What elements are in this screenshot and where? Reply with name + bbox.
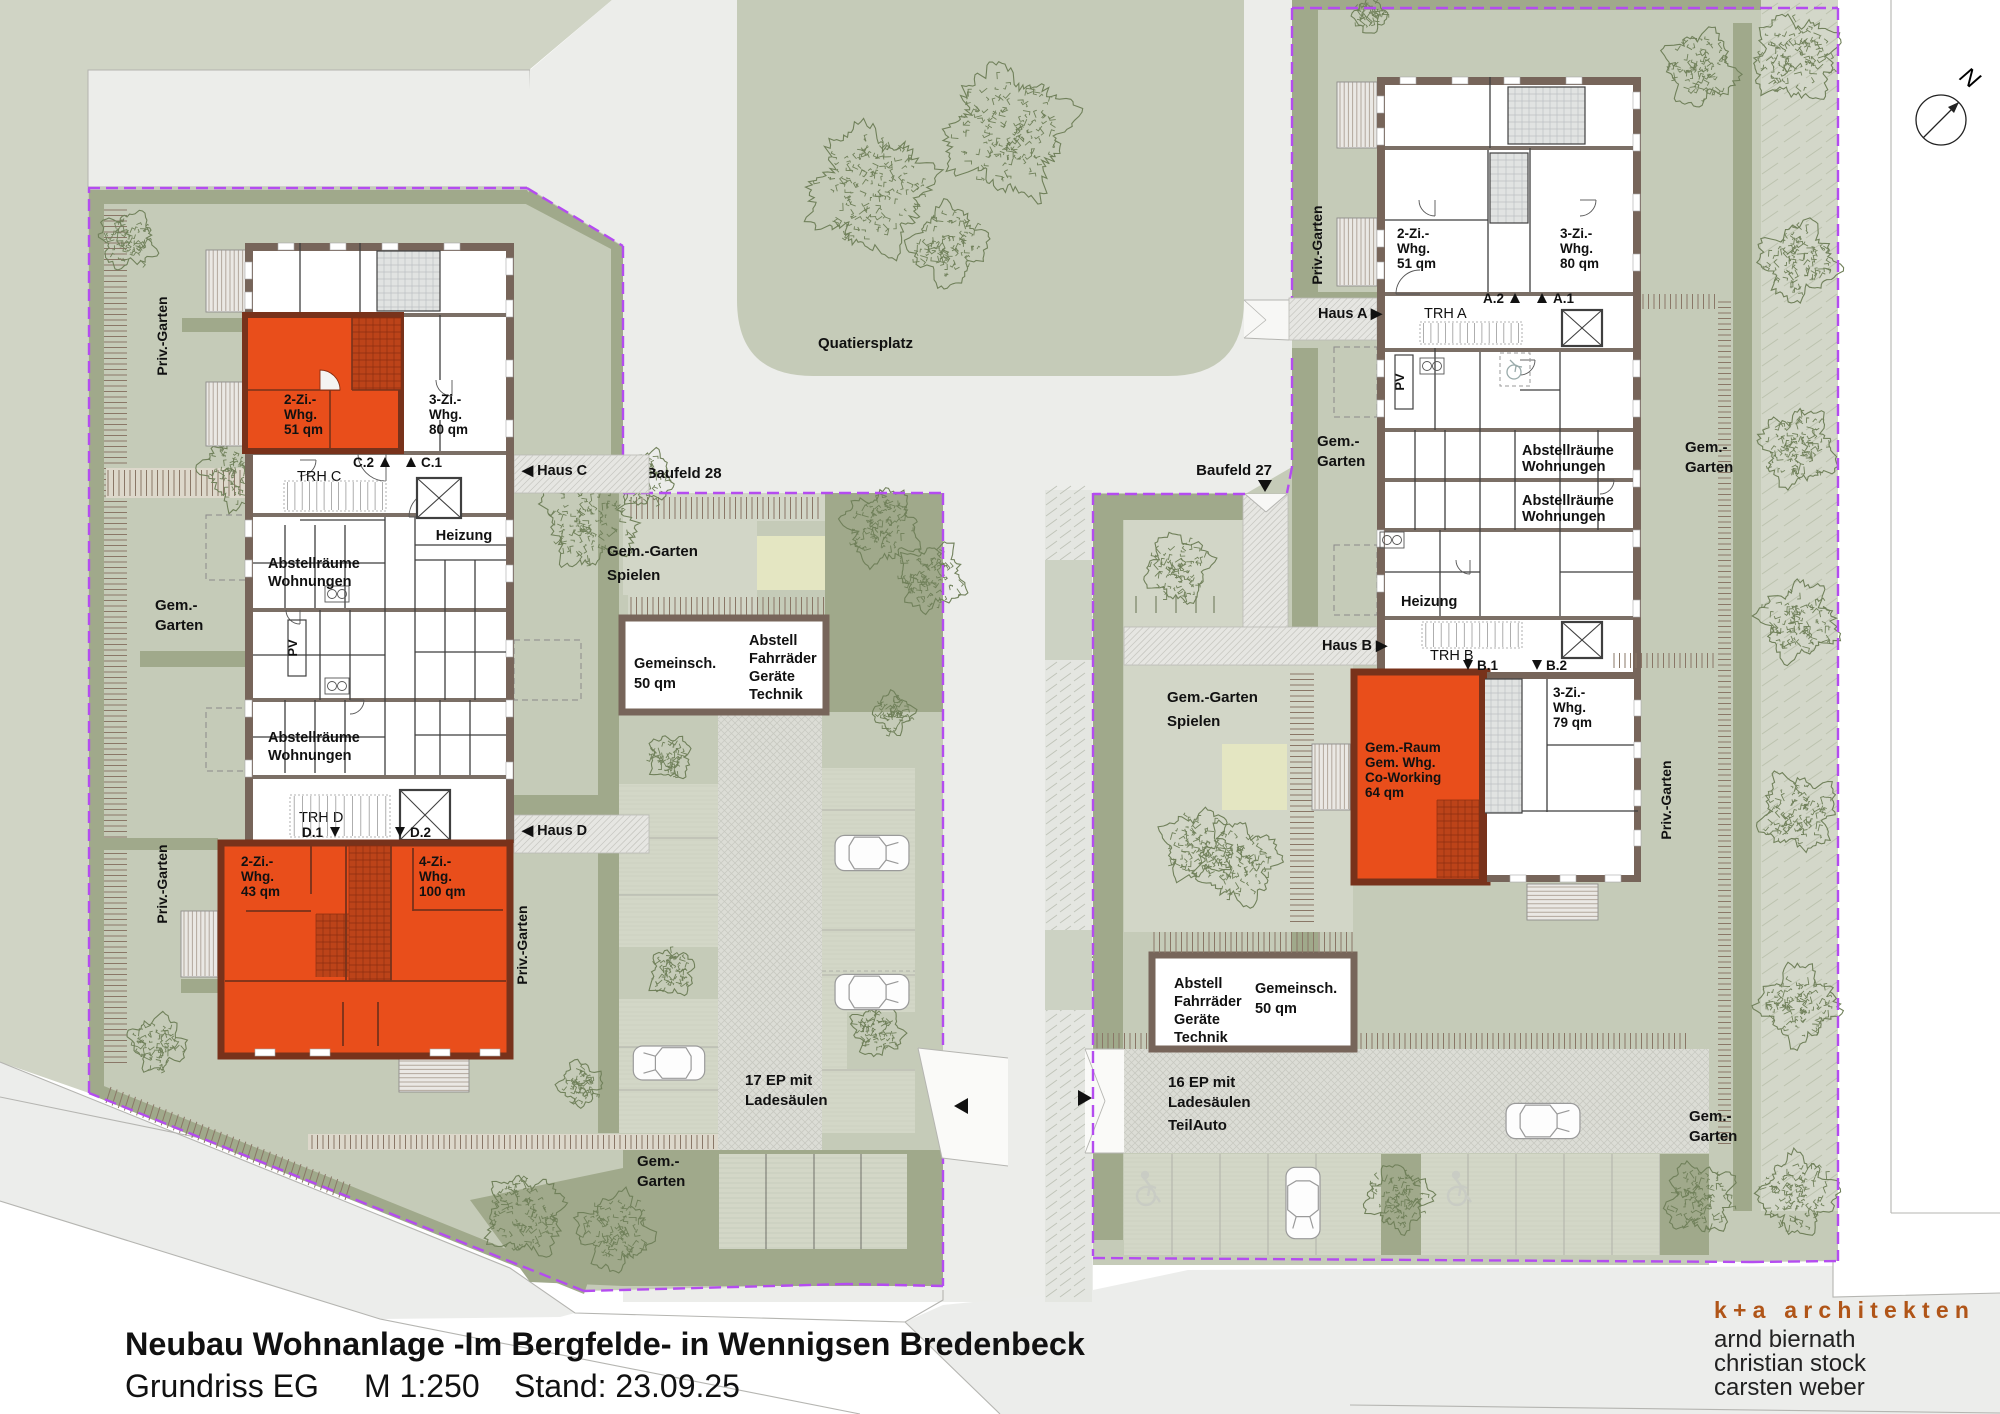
svg-text:Gem.-Raum: Gem.-Raum [1365,740,1441,755]
svg-text:TeilAuto: TeilAuto [1168,1117,1227,1134]
svg-text:Grundriss EG: Grundriss EG [125,1368,319,1404]
svg-text:4-Zi.-: 4-Zi.- [419,854,451,869]
svg-text:Whg.: Whg. [419,869,452,884]
svg-text:Fahrräder: Fahrräder [749,651,817,667]
svg-text:Priv.-Garten: Priv.-Garten [514,905,530,984]
svg-text:Technik: Technik [1174,1030,1229,1046]
svg-text:TRH A: TRH A [1424,306,1467,322]
svg-text:Ladesäulen: Ladesäulen [745,1092,828,1109]
svg-text:C.2: C.2 [353,455,374,470]
svg-text:Garten: Garten [1689,1128,1737,1145]
svg-text:Wohnungen: Wohnungen [268,574,352,590]
svg-text:Wohnungen: Wohnungen [268,748,352,764]
svg-text:Abstellräume: Abstellräume [1522,443,1614,459]
svg-text:Fahrräder: Fahrräder [1174,994,1242,1010]
svg-text:Stand: 23.09.25: Stand: 23.09.25 [514,1368,740,1404]
svg-text:PV: PV [285,639,300,657]
svg-text:3-Zi.-: 3-Zi.- [429,392,461,407]
svg-text:50 qm: 50 qm [1255,1001,1297,1017]
svg-text:Whg.: Whg. [241,869,274,884]
svg-text:Wohnungen: Wohnungen [1522,459,1606,475]
svg-text:Haus A ▶: Haus A ▶ [1318,306,1384,322]
svg-text:◀ Haus D: ◀ Haus D [521,823,587,839]
svg-text:Abstellräume: Abstellräume [268,730,360,746]
svg-text:50 qm: 50 qm [634,676,676,692]
svg-text:D.2: D.2 [410,825,431,840]
svg-text:◀ Haus C: ◀ Haus C [521,463,588,479]
svg-text:2-Zi.-: 2-Zi.- [241,854,273,869]
svg-text:Gemeinsch.: Gemeinsch. [634,656,716,672]
svg-text:Baufeld 27: Baufeld 27 [1196,462,1272,479]
svg-text:64 qm: 64 qm [1365,785,1404,800]
svg-text:43 qm: 43 qm [241,884,280,899]
svg-text:Garten: Garten [637,1173,685,1190]
svg-text:Ladesäulen: Ladesäulen [1168,1094,1251,1111]
svg-text:D.1: D.1 [302,825,324,840]
svg-text:Geräte: Geräte [1174,1012,1220,1028]
svg-text:Wohnungen: Wohnungen [1522,509,1606,525]
svg-text:Gem. Whg.: Gem. Whg. [1365,755,1436,770]
svg-text:3-Zi.-: 3-Zi.- [1553,685,1585,700]
svg-text:51 qm: 51 qm [284,422,323,437]
svg-text:Abstell: Abstell [1174,976,1222,992]
svg-text:A.2: A.2 [1483,291,1504,306]
svg-text:Gem.-Garten: Gem.-Garten [607,543,698,560]
svg-text:Abstellräume: Abstellräume [1522,493,1614,509]
svg-text:Whg.: Whg. [1560,241,1593,256]
svg-text:80 qm: 80 qm [1560,256,1599,271]
svg-text:Geräte: Geräte [749,669,795,685]
svg-text:Heizung: Heizung [436,528,492,544]
svg-text:Abstell: Abstell [749,633,797,649]
svg-text:Priv.-Garten: Priv.-Garten [1658,760,1674,839]
svg-text:Priv.-Garten: Priv.-Garten [154,296,170,375]
svg-text:Spielen: Spielen [1167,713,1220,730]
svg-text:christian stock: christian stock [1714,1350,1867,1377]
svg-text:carsten weber: carsten weber [1714,1374,1865,1401]
svg-text:Whg.: Whg. [284,407,317,422]
svg-text:51 qm: 51 qm [1397,256,1436,271]
svg-text:80 qm: 80 qm [429,422,468,437]
svg-text:TRH C: TRH C [297,469,341,485]
svg-text:Spielen: Spielen [607,567,660,584]
svg-text:Haus B ▶: Haus B ▶ [1322,638,1389,654]
svg-text:17 EP mit: 17 EP mit [745,1072,812,1089]
svg-text:Whg.: Whg. [429,407,462,422]
svg-text:Priv.-Garten: Priv.-Garten [154,844,170,923]
svg-text:Quatiersplatz: Quatiersplatz [818,335,913,352]
svg-text:Gem.-: Gem.- [1689,1108,1732,1125]
svg-text:Garten: Garten [1317,453,1365,470]
svg-text:Gem.-: Gem.- [1317,433,1360,450]
svg-text:B.1: B.1 [1477,658,1499,673]
svg-text:Gem.-: Gem.- [1685,439,1728,456]
svg-text:arnd biernath: arnd biernath [1714,1326,1855,1353]
svg-text:PV: PV [1392,373,1407,391]
svg-text:M 1:250: M 1:250 [364,1368,480,1404]
svg-text:2-Zi.-: 2-Zi.- [284,392,316,407]
svg-text:Neubau Wohnanlage -Im Bergfeld: Neubau Wohnanlage -Im Bergfelde- in Wenn… [125,1326,1086,1362]
svg-text:Gem.-Garten: Gem.-Garten [1167,689,1258,706]
svg-text:Gemeinsch.: Gemeinsch. [1255,981,1337,997]
svg-text:Technik: Technik [749,687,804,703]
svg-text:Priv.-Garten: Priv.-Garten [1309,205,1325,284]
svg-text:C.1: C.1 [421,455,443,470]
svg-text:Heizung: Heizung [1401,594,1457,610]
svg-text:TRH D: TRH D [299,810,343,826]
svg-text:Co-Working: Co-Working [1365,770,1441,785]
svg-text:16 EP mit: 16 EP mit [1168,1074,1235,1091]
svg-text:Whg.: Whg. [1553,700,1586,715]
svg-text:79 qm: 79 qm [1553,715,1592,730]
svg-text:A.1: A.1 [1553,291,1575,306]
svg-text:100 qm: 100 qm [419,884,466,899]
svg-text:Gem.-: Gem.- [637,1153,680,1170]
svg-text:k+a architekten: k+a architekten [1714,1297,1975,1323]
svg-text:3-Zi.-: 3-Zi.- [1560,226,1592,241]
svg-text:Gem.-: Gem.- [155,597,198,614]
svg-text:B.2: B.2 [1546,658,1567,673]
svg-text:2-Zi.-: 2-Zi.- [1397,226,1429,241]
svg-text:Whg.: Whg. [1397,241,1430,256]
svg-text:Garten: Garten [1685,459,1733,476]
svg-text:Abstellräume: Abstellräume [268,556,360,572]
svg-text:Garten: Garten [155,617,203,634]
